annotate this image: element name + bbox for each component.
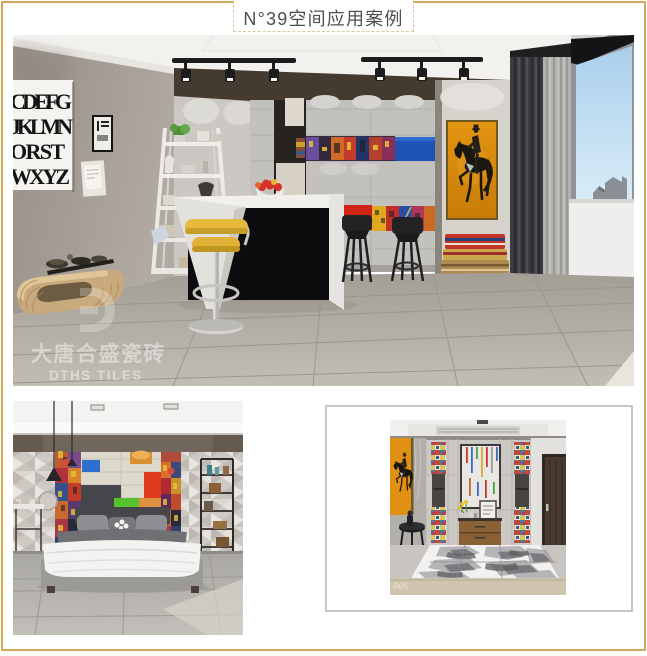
svg-text:CDEFG: CDEFG [13,89,72,114]
svg-text:WXYZ: WXYZ [13,164,70,189]
svg-text:DTHS TILES: DTHS TILES [49,368,143,383]
svg-text:R05: R05 [393,582,408,591]
svg-text:大唐合盛瓷砖: 大唐合盛瓷砖 [31,342,166,366]
svg-text:JKLMN: JKLMN [13,114,73,139]
svg-text:ORST: ORST [13,139,65,164]
